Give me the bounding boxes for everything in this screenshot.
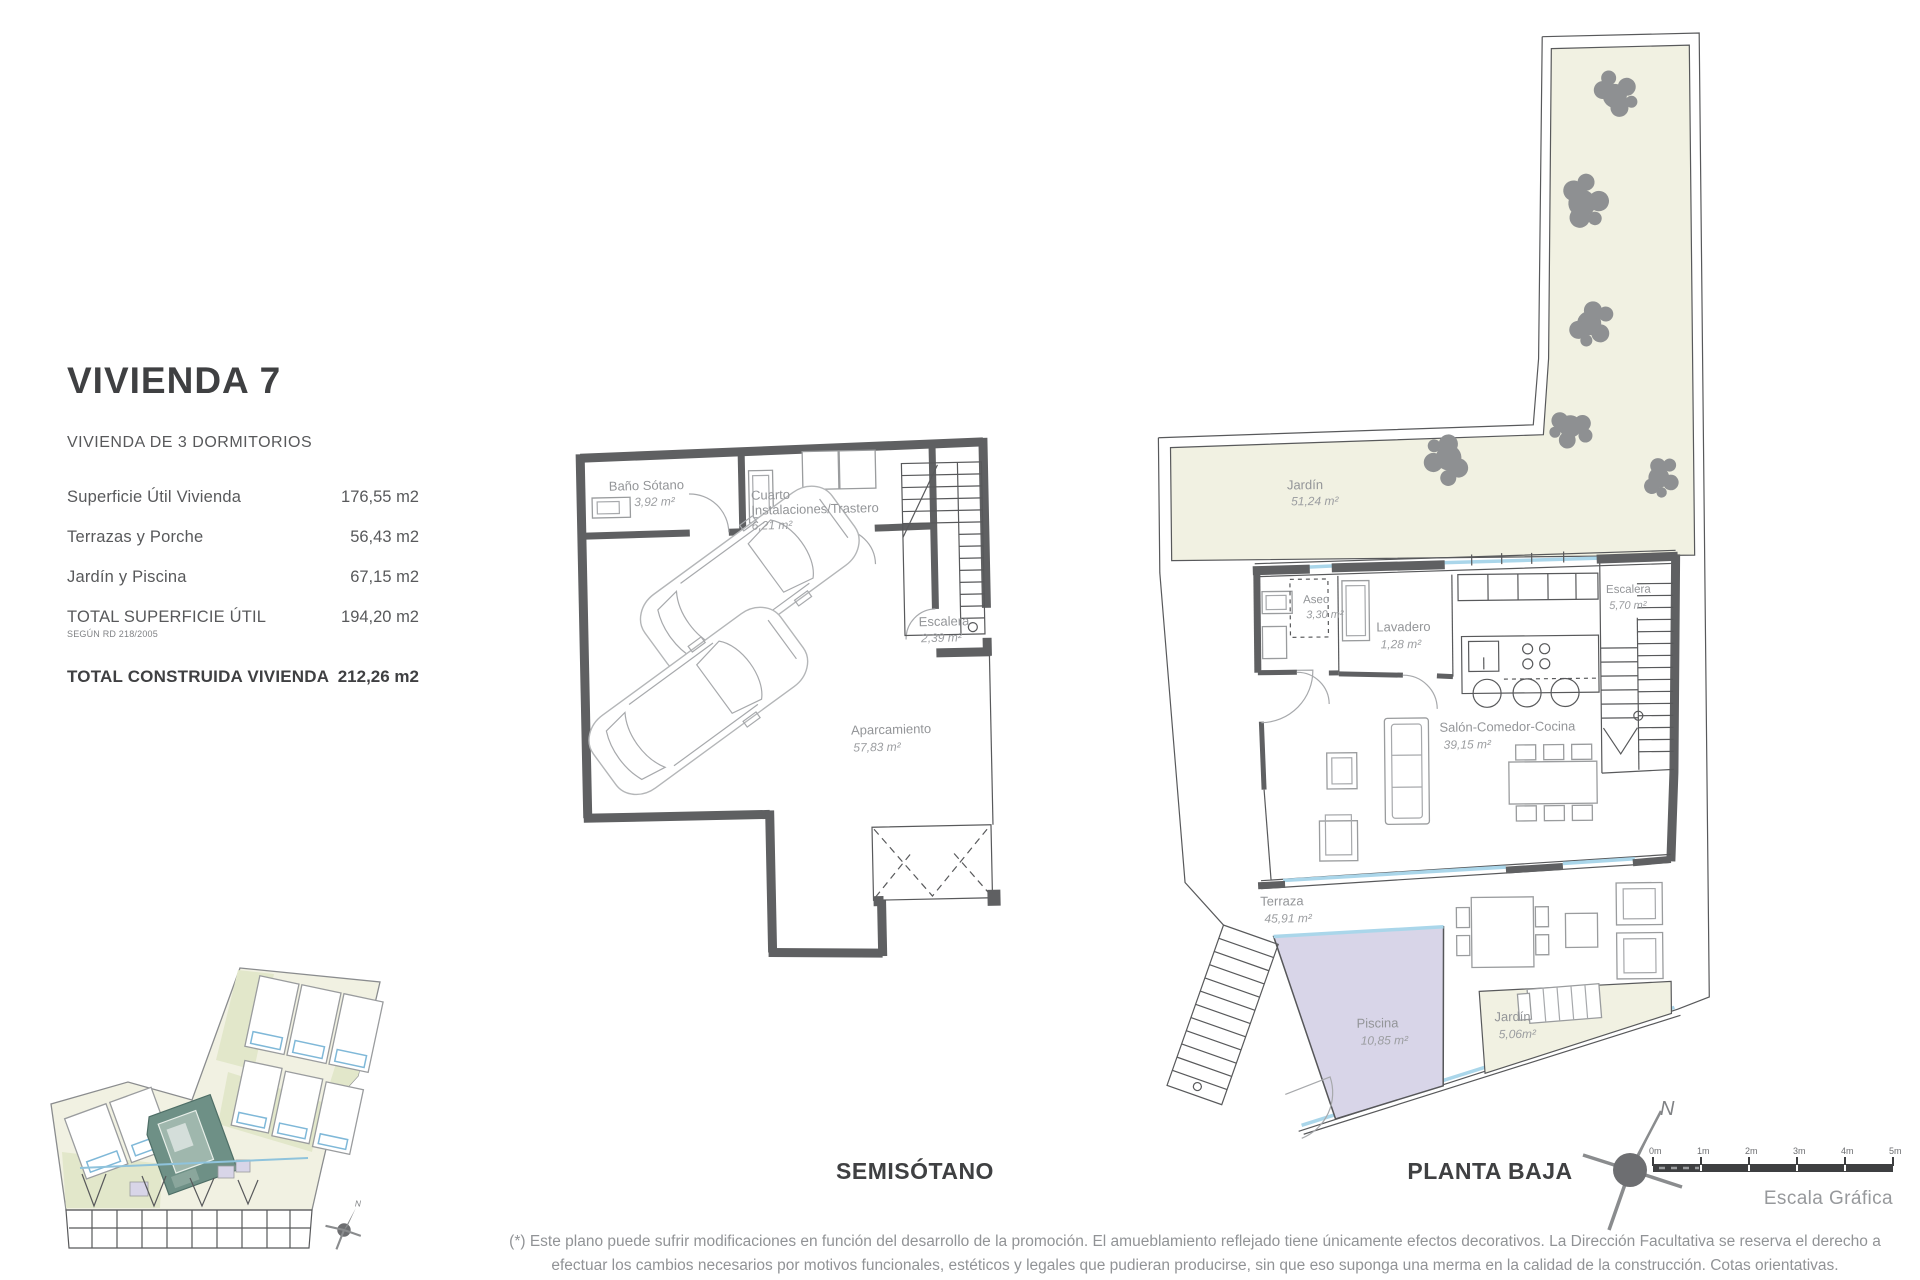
scale-bar-label: Escala Gráfica	[1633, 1188, 1893, 1210]
room-area-lavadero: 1,28 m²	[1380, 637, 1422, 651]
room-area-aparcamiento: 57,83 m²	[853, 740, 902, 755]
room-area-salon: 39,15 m²	[1444, 737, 1493, 752]
area-table: Superficie Útil Vivienda 176,55 m2 Terra…	[67, 488, 419, 687]
row-note: SEGÚN RD 218/2005	[67, 629, 266, 639]
row-value: 56,43 m2	[350, 528, 419, 547]
table-row-total: TOTAL CONSTRUIDA VIVIENDA 212,26 m2	[67, 667, 419, 687]
room-label-jardin-2: Jardín	[1494, 1009, 1530, 1024]
scale-tick: 1m	[1697, 1146, 1710, 1156]
table-row: Jardín y Piscina 67,15 m2	[67, 568, 419, 587]
scale-tick: 4m	[1841, 1146, 1854, 1156]
terrace-stairs	[1167, 925, 1278, 1105]
garden-area	[1166, 45, 1694, 560]
side-table	[1565, 913, 1597, 947]
scale-bar: 0m 1m 2m 3m 4m 5m	[1645, 1140, 1905, 1190]
svg-text:N: N	[355, 1198, 362, 1208]
room-area-terraza: 45,91 m²	[1264, 911, 1313, 926]
room-label-aparcamiento: Aparcamiento	[851, 721, 932, 738]
room-label-jardin: Jardín	[1287, 477, 1323, 492]
room-area-cuarto: 6,21 m²	[752, 518, 794, 533]
site-north-arrow-icon: N	[326, 1198, 362, 1249]
room-label-piscina: Piscina	[1356, 1015, 1399, 1030]
sofa	[1384, 718, 1429, 824]
table-row: TOTAL SUPERFICIE ÚTILSEGÚN RD 218/2005 1…	[67, 608, 419, 639]
row-label: Terrazas y Porche	[67, 528, 203, 547]
row-label: Superficie Útil Vivienda	[67, 488, 241, 507]
disclaimer-text: (*) Este plano puede sufrir modificacion…	[480, 1230, 1910, 1278]
table-row: Terrazas y Porche 56,43 m2	[67, 528, 419, 547]
room-area-escalera: 2,39 m²	[920, 630, 963, 645]
row-label: TOTAL SUPERFICIE ÚTIL	[67, 608, 266, 626]
table-row: Superficie Útil Vivienda 176,55 m2	[67, 488, 419, 507]
row-label: TOTAL CONSTRUIDA VIVIENDA	[67, 667, 329, 687]
row-value: 67,15 m2	[350, 568, 419, 587]
scale-tick: 3m	[1793, 1146, 1806, 1156]
info-panel: VIVIENDA 7 VIVIENDA DE 3 DORMITORIOS Sup…	[67, 360, 419, 708]
page-subtitle: VIVIENDA DE 3 DORMITORIOS	[67, 434, 419, 452]
scale-tick: 2m	[1745, 1146, 1758, 1156]
room-area-aseo: 3,30 m²	[1306, 609, 1344, 621]
room-label-bano-sotano: Baño Sótano	[609, 477, 684, 494]
room-label-escalera-pb: Escalera	[1606, 584, 1651, 596]
row-value: 212,26 m2	[338, 667, 419, 687]
basement-bathroom-fixtures	[592, 497, 630, 518]
row-value: 176,55 m2	[341, 488, 419, 507]
sun-loungers	[1616, 882, 1663, 978]
semisotano-floorplan: Baño Sótano 3,92 m² Cuarto Instalaciones…	[450, 355, 1030, 1035]
room-area-piscina: 10,85 m²	[1361, 1033, 1410, 1048]
row-label: Jardín y Piscina	[67, 568, 187, 587]
room-label-salon: Salón-Comedor-Cocina	[1439, 718, 1576, 734]
page-title: VIVIENDA 7	[67, 360, 419, 402]
room-label-cuarto: Cuarto	[751, 487, 790, 503]
row-value: 194,20 m2	[341, 608, 419, 627]
plantabaja-floorplan: Jardín 51,24 m²	[1120, 30, 1740, 1170]
room-label-cuarto-2: Instalaciones/Trastero	[751, 500, 879, 518]
room-area-jardin-2: 5,06m²	[1499, 1027, 1537, 1041]
aseo-wc	[1262, 626, 1286, 658]
room-label-aseo: Aseo	[1303, 594, 1329, 606]
dining-table	[1509, 744, 1598, 821]
outdoor-table	[1456, 897, 1549, 968]
room-label-terraza: Terraza	[1260, 893, 1304, 908]
north-label: N	[1660, 1098, 1675, 1120]
site-key-plan: N	[22, 952, 412, 1280]
room-label-escalera: Escalera	[919, 613, 971, 629]
room-area-bano-sotano: 3,92 m²	[634, 494, 676, 509]
scale-tick: 0m	[1649, 1146, 1662, 1156]
semisotano-title: SEMISÓTANO	[765, 1158, 1065, 1185]
room-area-jardin: 51,24 m²	[1291, 494, 1340, 509]
basement-stairs	[901, 462, 985, 636]
room-area-escalera-pb: 5,70 m²	[1609, 600, 1647, 612]
scale-tick: 5m	[1889, 1146, 1902, 1156]
floorplan-sheet: VIVIENDA 7 VIVIENDA DE 3 DORMITORIOS Sup…	[0, 0, 1920, 1280]
kitchen	[1458, 573, 1599, 707]
room-label-lavadero: Lavadero	[1376, 619, 1430, 635]
